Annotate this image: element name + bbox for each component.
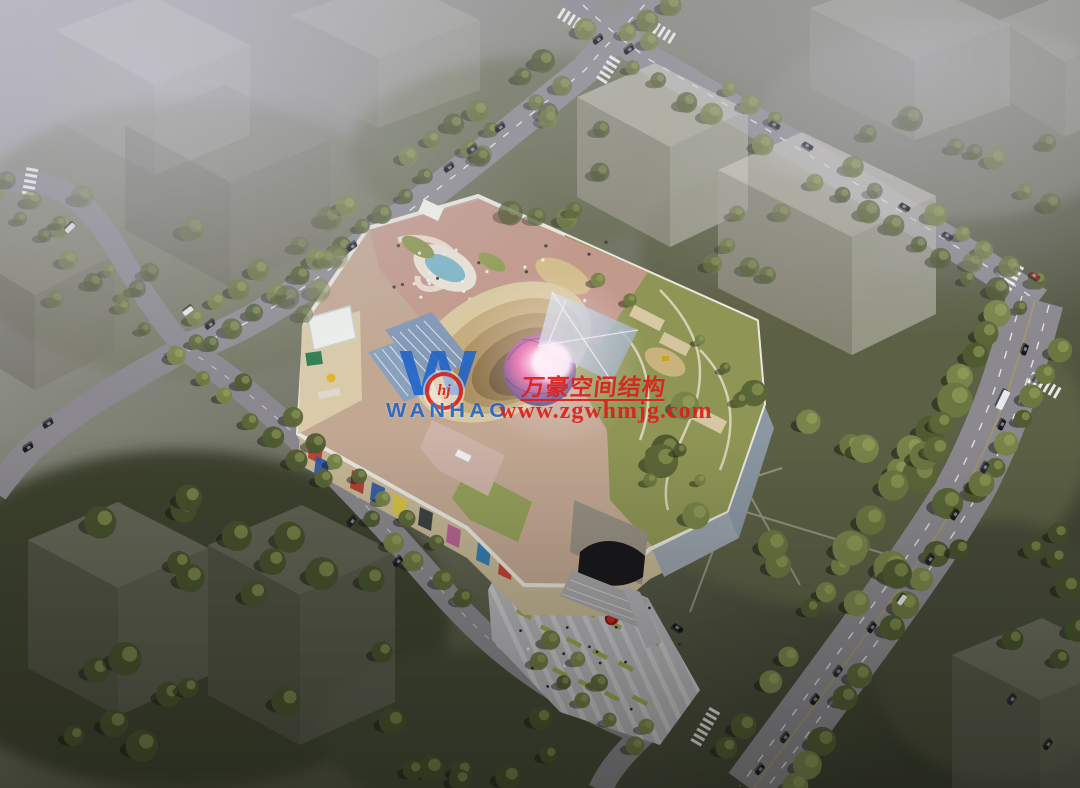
watermark-company-name: 万豪空间结构 — [520, 368, 668, 402]
watermark-website-url: www.zgwhmjg.com — [499, 398, 713, 425]
logo-monogram: hj — [437, 383, 450, 399]
aerial-rendering-image: W hj WANHAO 万豪空间结构 www.zgwhmjg.com — [0, 0, 1080, 788]
logo-wordmark: WANHAO — [386, 400, 510, 423]
